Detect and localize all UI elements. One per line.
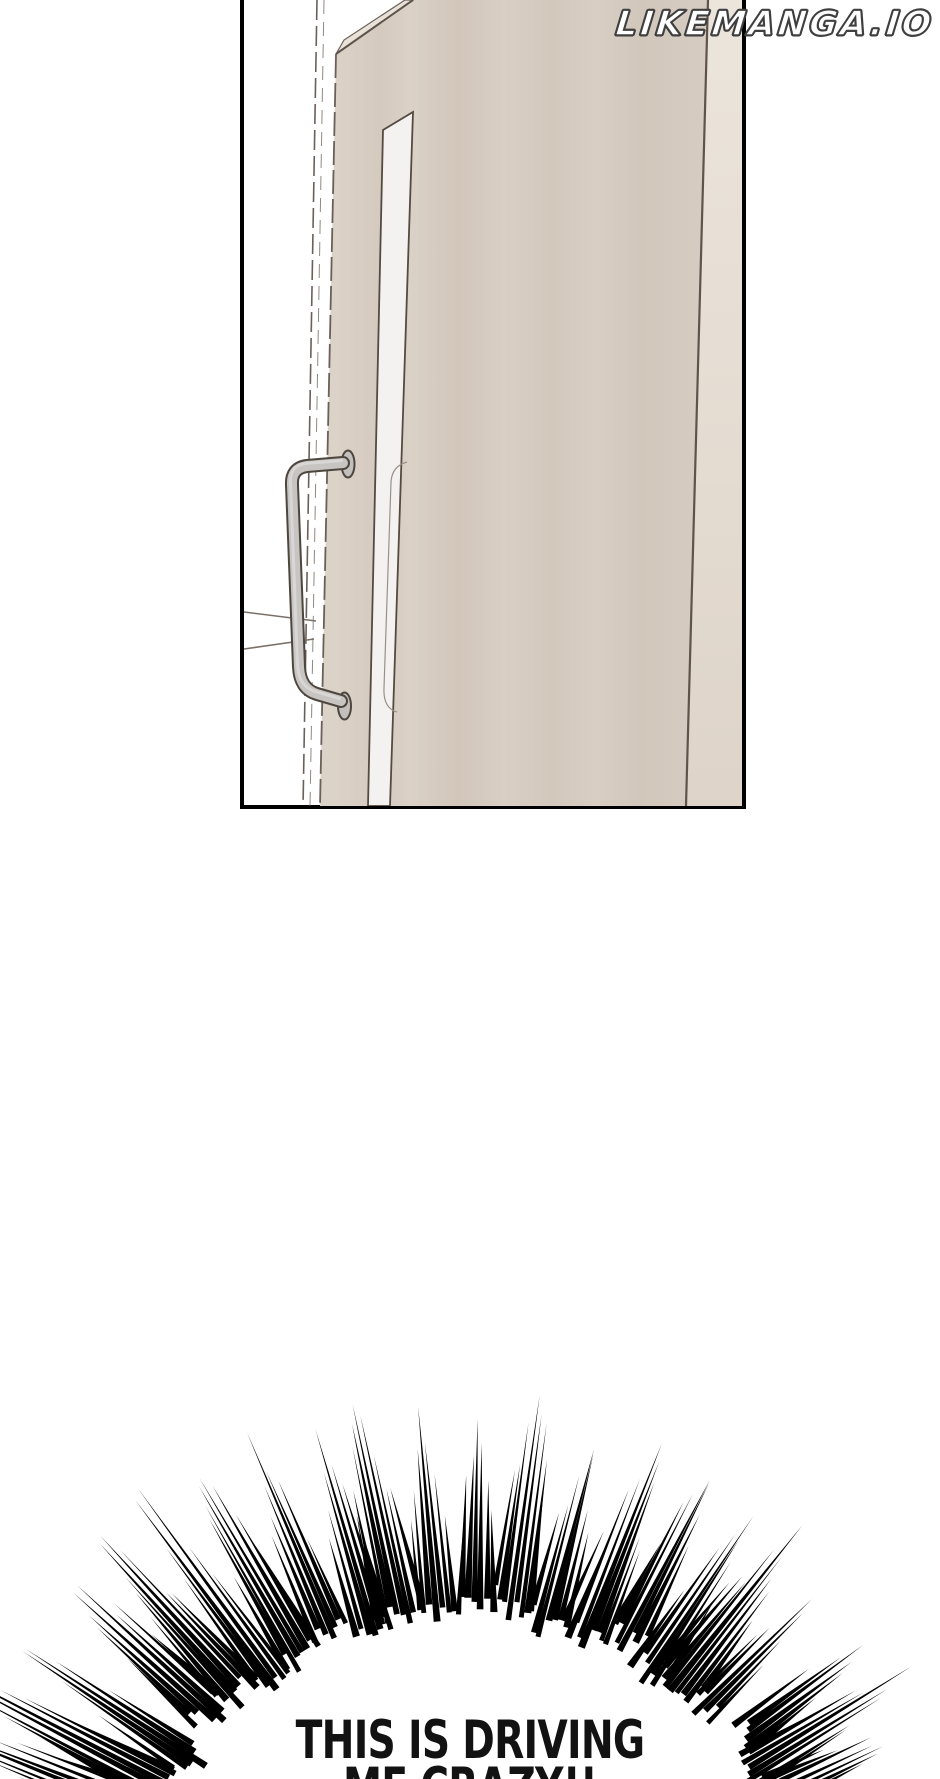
burst-spike — [125, 1577, 244, 1709]
site-watermark: LIKEMANGA.IO — [614, 4, 936, 44]
door-panel-artwork — [0, 0, 940, 812]
emphasis-burst-artwork — [0, 1214, 940, 1779]
burst-spike — [209, 1519, 288, 1656]
burst-spike — [484, 1481, 491, 1599]
manga-page: LIKEMANGA.IO THIS IS DRIVING ME CRAZY!! — [0, 0, 940, 1779]
burst-spike — [459, 1475, 467, 1597]
burst-spike — [477, 1443, 484, 1610]
burst-spike — [667, 1525, 802, 1693]
burst-spike — [633, 1483, 709, 1634]
burst-spike — [490, 1510, 497, 1612]
speech-line-2: ME CRAZY!! — [122, 1764, 818, 1779]
speech-text: THIS IS DRIVING ME CRAZY!! — [0, 1717, 940, 1779]
